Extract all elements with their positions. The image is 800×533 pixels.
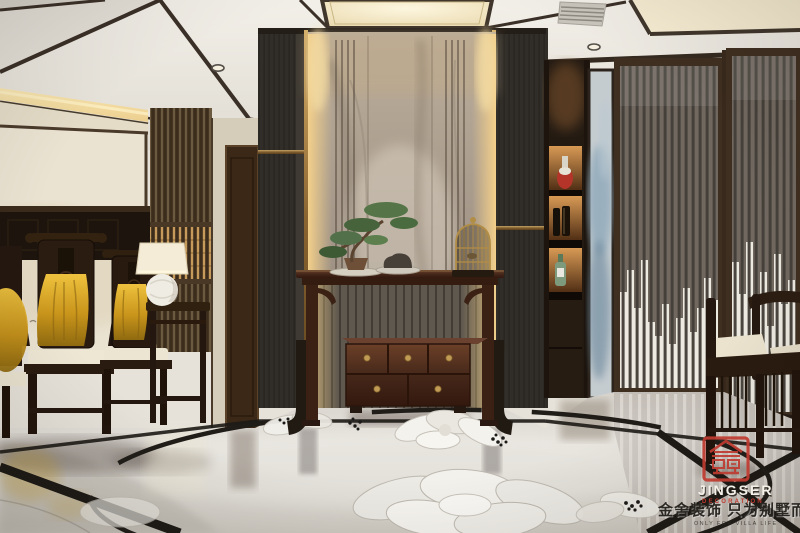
scene-canvas: [0, 0, 800, 533]
brand-slogan-en: ONLY FOR VILLA LIFE: [694, 521, 778, 527]
brand-name: JINGSER: [698, 482, 773, 498]
brand-slogan-zh: 金舍装饰 只为别墅而生: [658, 499, 800, 520]
interior-photo: JINGSER DECORATION 金舍装饰 只为别墅而生 ONLY FOR …: [0, 0, 800, 533]
vignette: [0, 0, 800, 533]
